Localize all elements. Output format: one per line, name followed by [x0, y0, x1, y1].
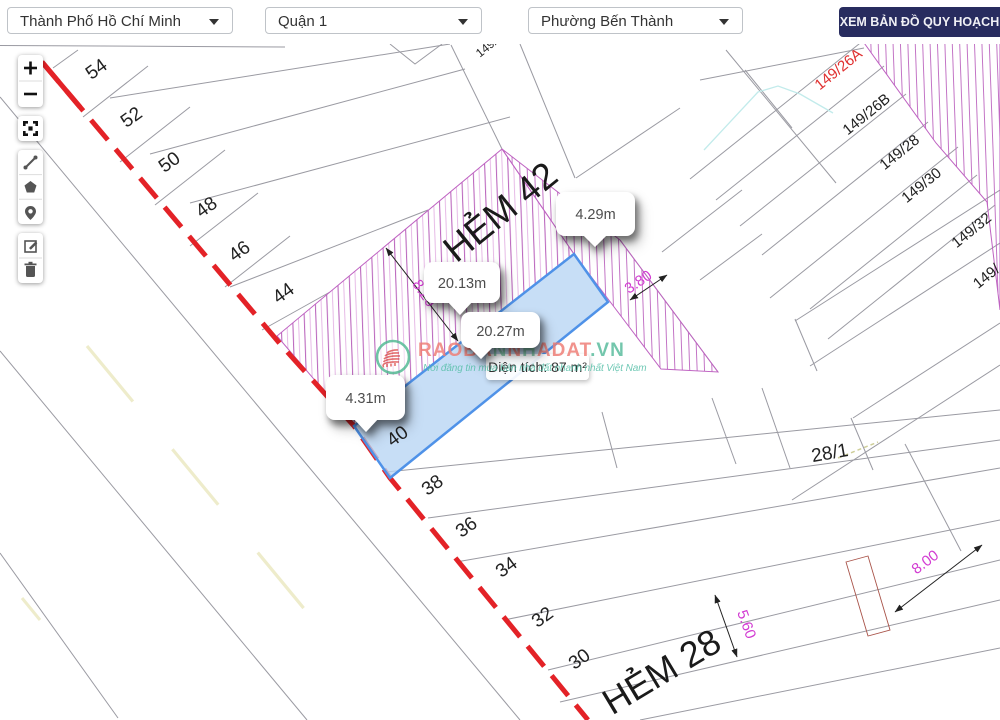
- svg-text:20.27m: 20.27m: [476, 324, 524, 340]
- svg-text:20.13m: 20.13m: [438, 276, 486, 292]
- svg-text:4.29m: 4.29m: [575, 207, 615, 223]
- svg-text:4.31m: 4.31m: [345, 391, 385, 407]
